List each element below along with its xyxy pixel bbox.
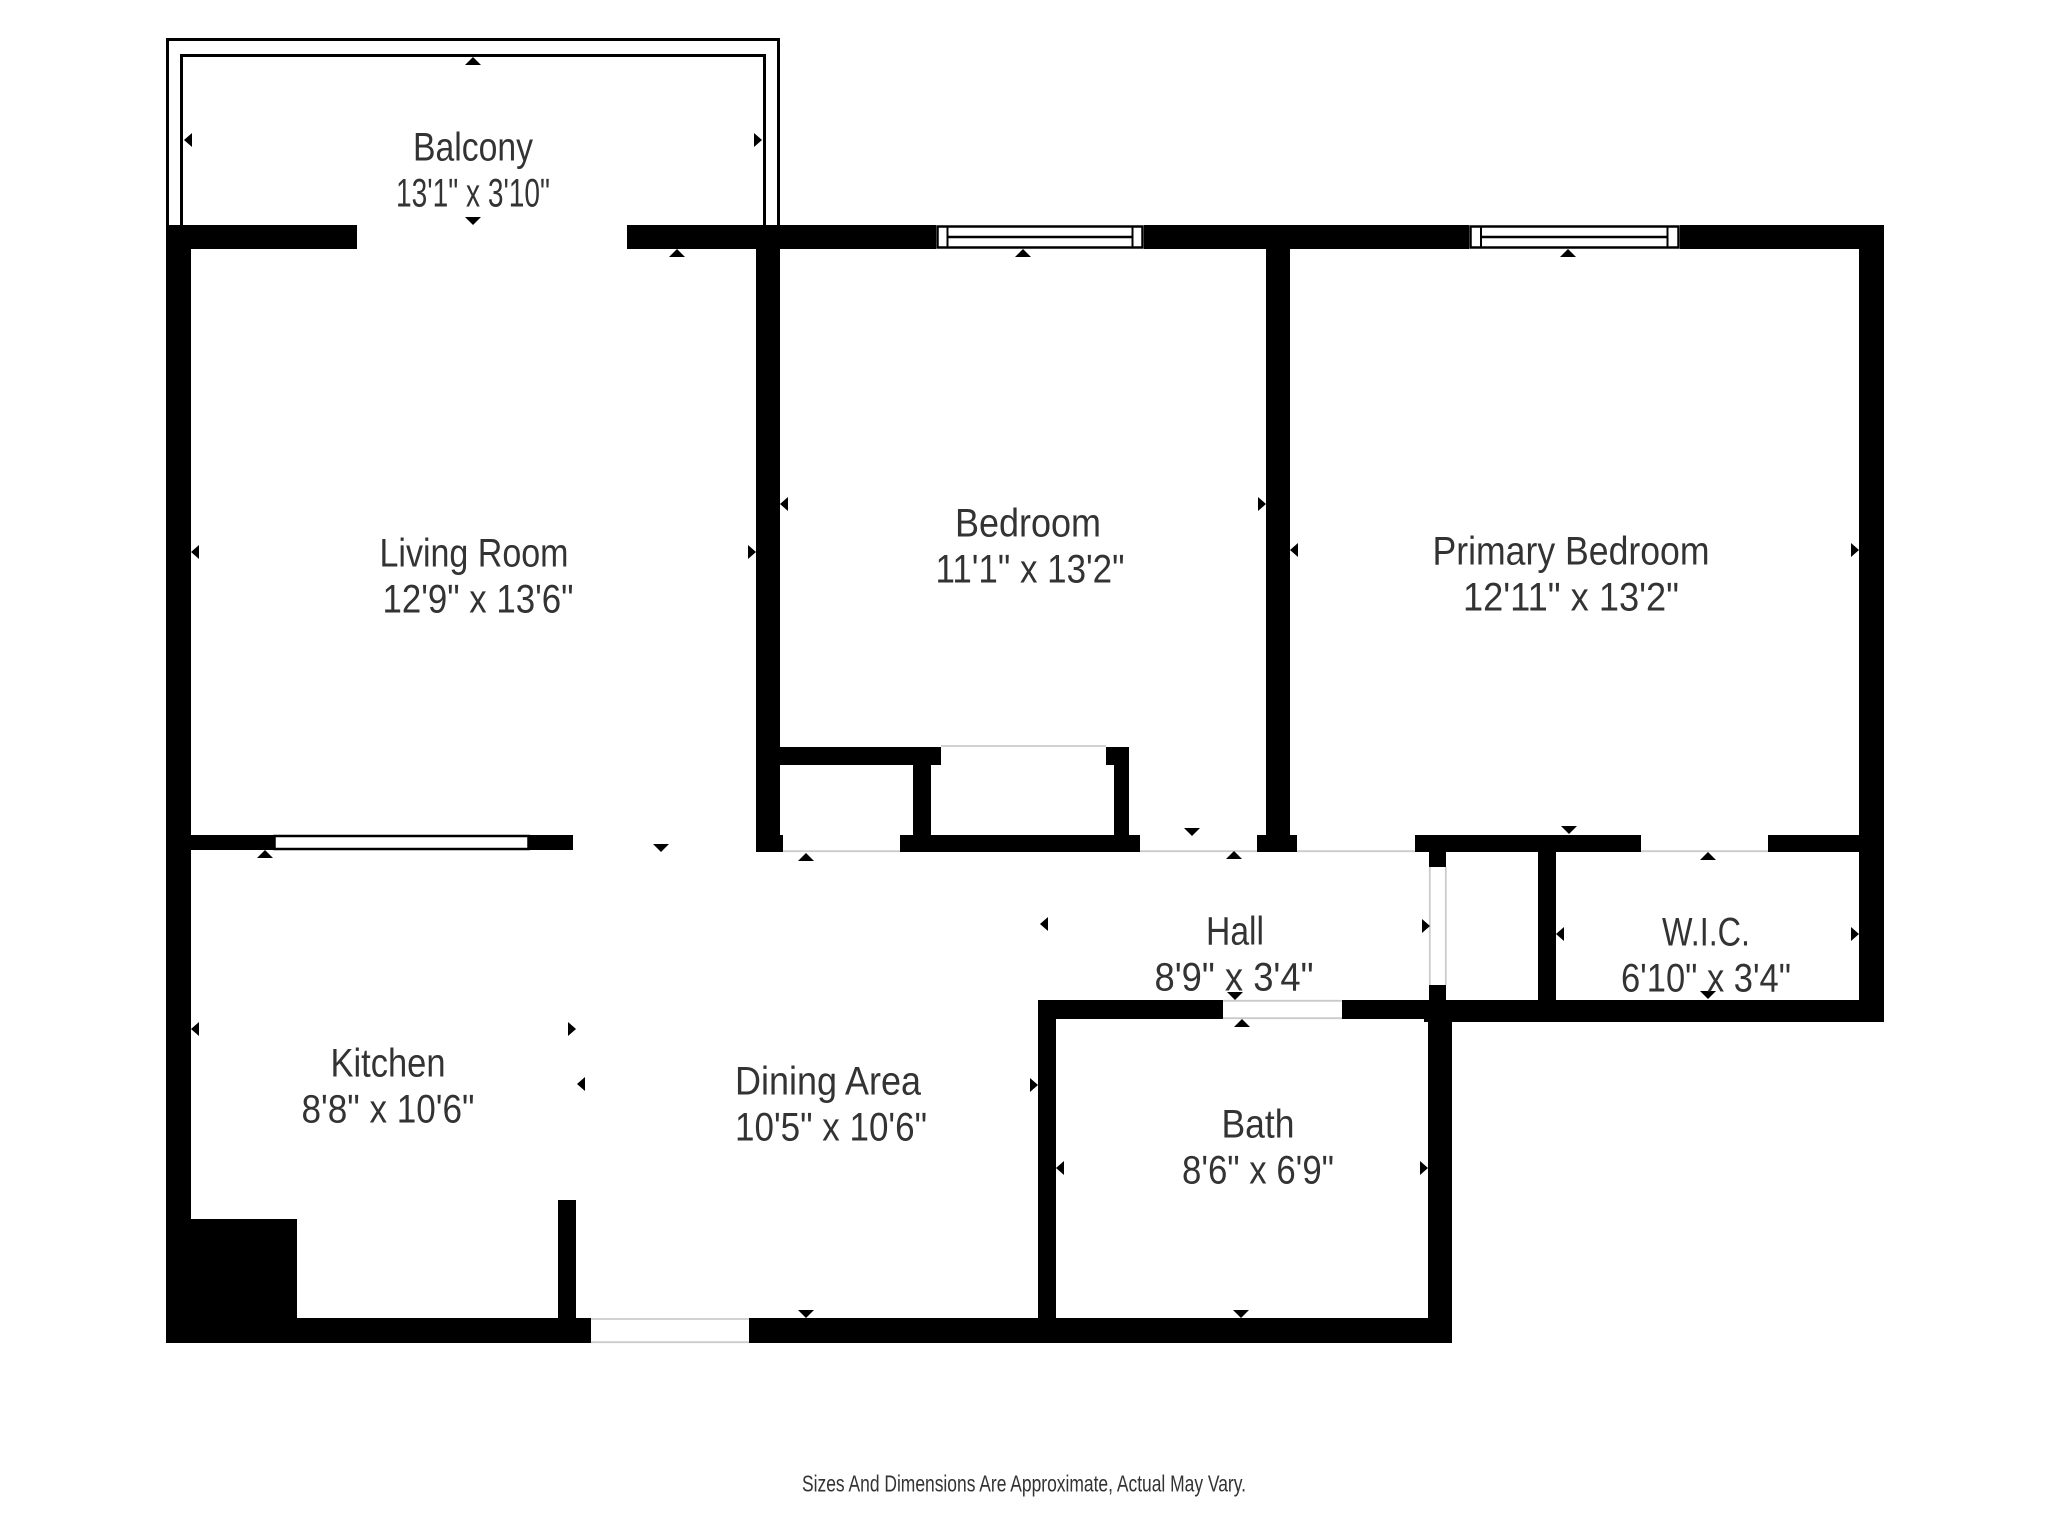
svg-text:8'9" x 3'4": 8'9" x 3'4"	[1155, 956, 1314, 1000]
svg-text:6'10" x 3'4": 6'10" x 3'4"	[1621, 957, 1791, 1001]
svg-text:12'11" x 13'2": 12'11" x 13'2"	[1463, 576, 1679, 620]
svg-text:Primary Bedroom: Primary Bedroom	[1433, 530, 1710, 574]
svg-text:Kitchen: Kitchen	[331, 1042, 446, 1086]
svg-text:Bath: Bath	[1222, 1103, 1295, 1147]
svg-text:8'6" x 6'9": 8'6" x 6'9"	[1182, 1149, 1334, 1193]
svg-text:8'8" x 10'6": 8'8" x 10'6"	[302, 1088, 475, 1132]
svg-text:Dining Area: Dining Area	[735, 1060, 922, 1104]
svg-text:11'1" x 13'2": 11'1" x 13'2"	[936, 548, 1125, 592]
svg-text:W.I.C.: W.I.C.	[1662, 911, 1750, 955]
svg-text:13'1" x 3'10": 13'1" x 3'10"	[396, 172, 550, 216]
svg-text:Living Room: Living Room	[380, 532, 569, 576]
svg-text:12'9" x 13'6": 12'9" x 13'6"	[383, 578, 574, 622]
svg-text:Sizes And Dimensions Are Appro: Sizes And Dimensions Are Approximate, Ac…	[802, 1470, 1246, 1496]
svg-text:Balcony: Balcony	[413, 126, 533, 170]
svg-text:Bedroom: Bedroom	[955, 502, 1101, 546]
svg-text:Hall: Hall	[1206, 910, 1264, 954]
svg-text:10'5" x 10'6": 10'5" x 10'6"	[735, 1106, 927, 1150]
